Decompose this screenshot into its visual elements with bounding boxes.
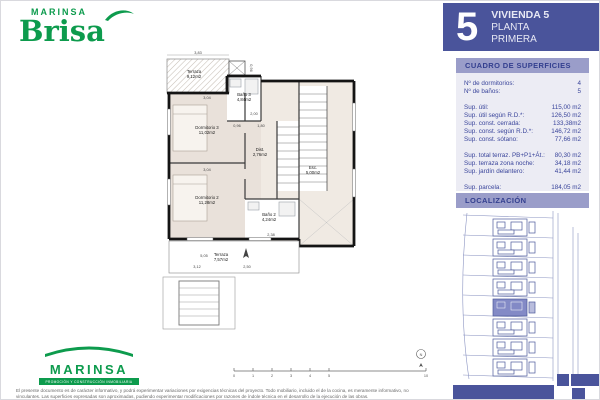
table-row: Sup. const. sótano:77,66 m2 [464, 136, 581, 144]
table-row: Sup. const. según R.D.*:146,72 m2 [464, 128, 581, 136]
surfaces-table: Nº de dormitorios:4 Nº de baños:5 Sup. ú… [456, 73, 589, 191]
svg-text:N: N [420, 353, 423, 357]
table-row: Sup. jardín delantero:41,44 m2 [464, 168, 581, 176]
footer-blue-bar [453, 385, 554, 400]
stairs-small-area [277, 121, 299, 191]
localizacion-title-bar: LOCALIZACIÓN [456, 193, 589, 208]
document-page: MARINSA Brisa 5 VIVIENDA 5 PLANTA PRIMER… [0, 0, 600, 400]
table-row: Nº de dormitorios:4 [464, 80, 581, 88]
area-bano-2: 4,24m2 [262, 217, 277, 222]
logo-swoosh-icon [103, 7, 137, 23]
shaft [229, 61, 245, 75]
svg-text:3: 3 [290, 374, 292, 378]
table-row: Sup. útil según R.D.*:126,50 m2 [464, 112, 581, 120]
disclaimer-line-2: vinculantes. Las superficies expresadas … [16, 394, 438, 400]
dim-dorm2-width: 3,04 [203, 168, 210, 172]
floor-plan: Terraza 9,12m2 Baño 3 4,84m2 Dormitorio … [149, 51, 441, 397]
svg-text:1: 1 [252, 374, 254, 378]
svg-text:5: 5 [328, 374, 330, 378]
brisa-logo: MARINSA Brisa [19, 7, 139, 59]
table-row: Sup. const. cerrada:133,38m2 [464, 120, 581, 128]
area-dormitorio-2: 11,28m2 [199, 200, 216, 205]
table-row: Sup. terraza zona noche:34,18 m2 [464, 160, 581, 168]
site-plan [453, 211, 593, 381]
dim-hall-a: 2,00 [250, 112, 257, 116]
area-terraza-bottom: 7,57m2 [214, 257, 229, 262]
table-row: Sup. total terraz. PB+P1+Át.:80,30 m2 [464, 152, 581, 160]
dim-terrace-b: 3,12 [193, 265, 200, 269]
dim-terrace-a: 5,05 [200, 254, 207, 258]
unit-floor-1: PLANTA [491, 22, 549, 34]
table-row: Sup. parcela:184,05 m2 [464, 184, 581, 192]
unit-title-block: VIVIENDA 5 PLANTA PRIMERA [491, 9, 549, 46]
disclaimer-line-1: El presente documento es de carácter inf… [16, 388, 438, 394]
site-boundary [463, 213, 469, 379]
svg-text:4: 4 [309, 374, 311, 378]
area-distribuidor: 2,76m2 [253, 152, 268, 157]
brand-bottom-tagline: PROMOCIÓN Y CONSTRUCCIÓN INMOBILIARIA [39, 378, 139, 385]
site-unit-highlighted [493, 299, 535, 316]
tau-logo-icon [557, 372, 600, 400]
area-terraza-top: 9,12m2 [187, 74, 202, 79]
svg-text:0: 0 [233, 374, 235, 378]
svg-text:10: 10 [424, 374, 428, 378]
room-terraza-bottom [169, 241, 299, 273]
dim-dorm3-width: 3,04 [203, 96, 210, 100]
brand-bottom-name: MARINSA [39, 363, 139, 377]
dim-shaft: 0,96 [249, 64, 253, 71]
area-dormitorio-3: 11,02m2 [199, 130, 216, 135]
unit-floor-2: PRIMERA [491, 34, 549, 46]
dim-top-width: 3,83 [194, 51, 201, 55]
scale-bar: 0 1 2 3 4 5 10 [233, 368, 428, 378]
roof-swoosh-icon [39, 346, 139, 358]
north-arrow-icon: N [417, 350, 426, 368]
area-bano-3: 4,84m2 [237, 97, 252, 102]
unit-number: 5 [456, 7, 478, 47]
area-escalera: 5,00m2 [306, 170, 321, 175]
dim-terrace-c: 2,50 [243, 265, 250, 269]
dim-hall-b: 0,96 [233, 124, 240, 128]
table-row: Nº de baños:5 [464, 88, 581, 96]
legal-disclaimer: El presente documento es de carácter inf… [16, 388, 438, 399]
unit-header: 5 VIVIENDA 5 PLANTA PRIMERA [443, 3, 599, 51]
dim-hall-c: 1,80 [257, 124, 264, 128]
table-row: Sup. útil:115,00 m2 [464, 104, 581, 112]
unit-name: VIVIENDA 5 [491, 9, 549, 22]
marinsa-logo: MARINSA PROMOCIÓN Y CONSTRUCCIÓN INMOBIL… [39, 345, 139, 385]
front-garden [163, 277, 235, 329]
surfaces-title-bar: CUADRO DE SUPERFICIES [456, 58, 589, 73]
site-units [493, 219, 535, 376]
svg-text:2: 2 [271, 374, 273, 378]
dim-bano2-width: 2,38 [267, 233, 274, 237]
